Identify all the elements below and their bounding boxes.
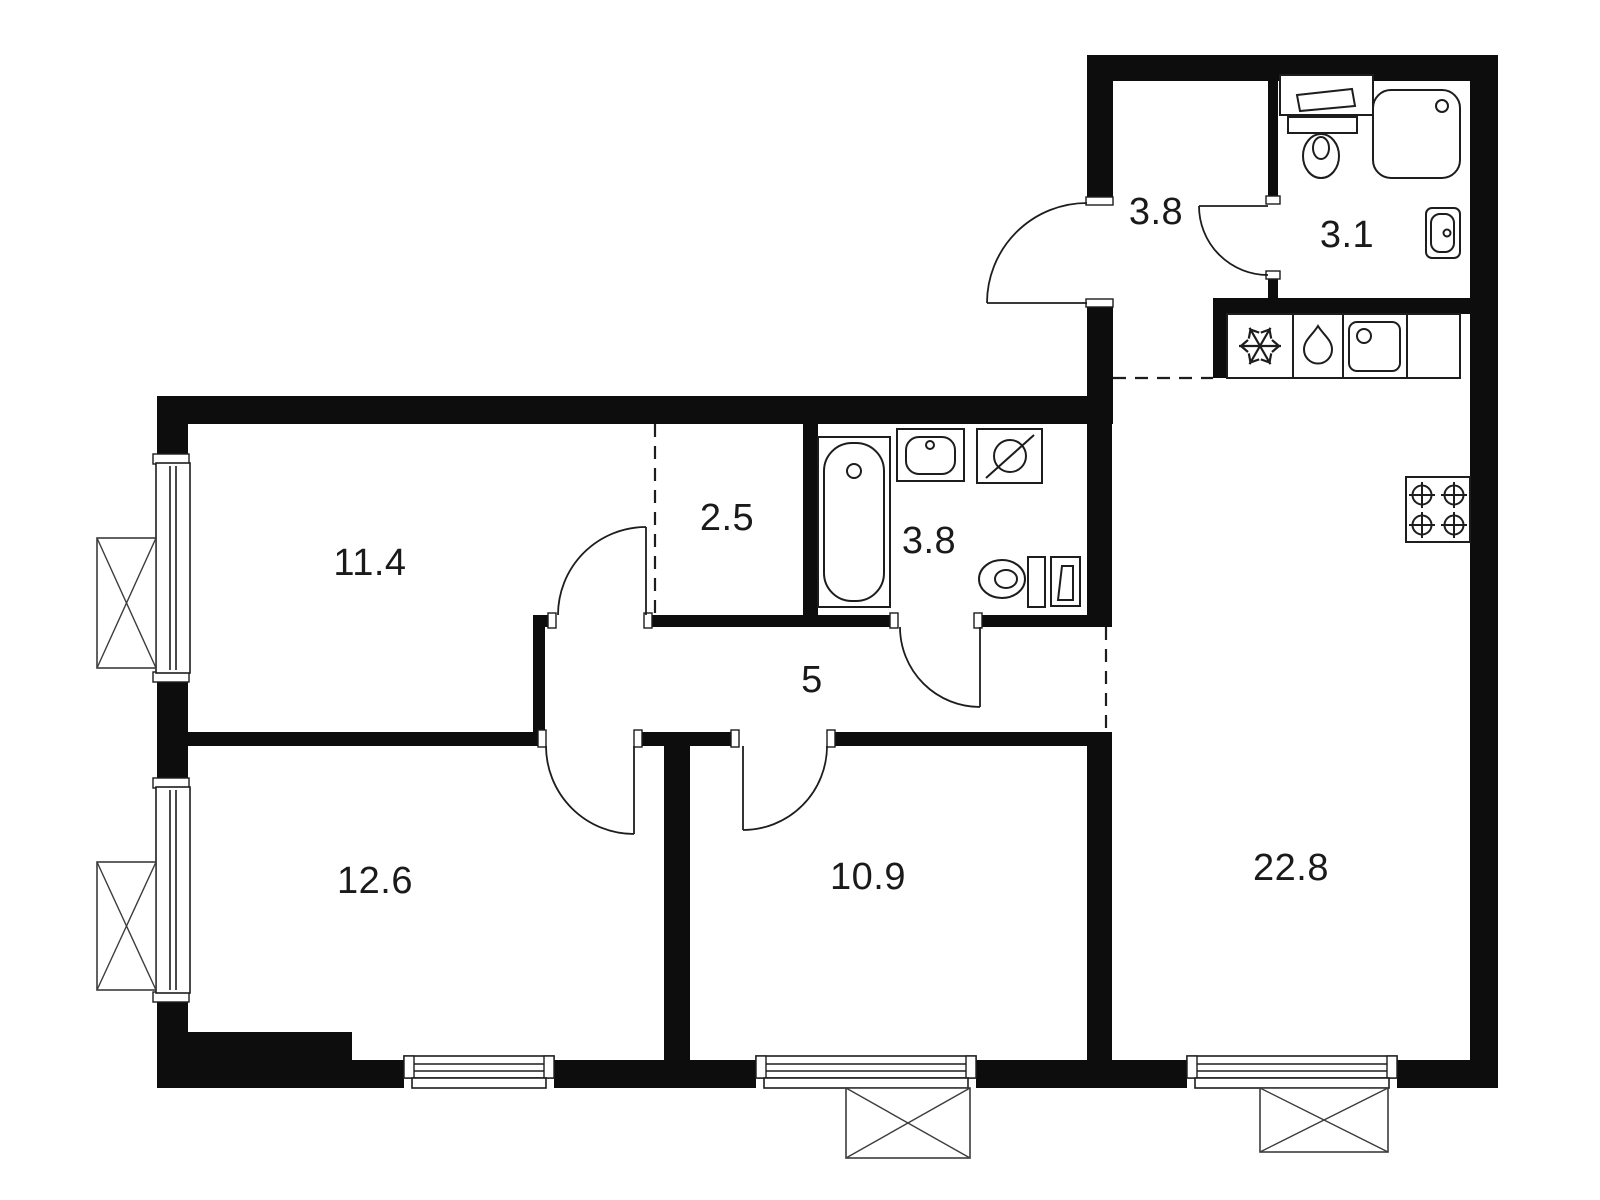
- washbasin-icon: [1426, 208, 1460, 258]
- wall-bottom-b: [554, 1060, 756, 1088]
- room-label-bathroom-main: 3.8: [902, 520, 956, 562]
- entrance-door-arc: [987, 203, 1087, 303]
- wall-left-seg2: [157, 673, 188, 787]
- wall-right-outer: [1470, 55, 1498, 1088]
- room-label-living-kitchen: 22.8: [1253, 847, 1329, 889]
- bedroom-bottom-left-door-jamb: [538, 730, 546, 747]
- wall-top-main: [157, 396, 1113, 424]
- wall-bath-top-divider-lower: [1268, 279, 1278, 298]
- entrance-door-jamb: [1086, 299, 1113, 307]
- wall-wardrobe-bath-divider: [803, 424, 818, 615]
- balcony-icon: [97, 862, 156, 990]
- entrance-door-jamb: [1086, 197, 1113, 205]
- room-label-bedroom-bottom-left: 12.6: [337, 860, 413, 902]
- wall-living-divider: [1087, 746, 1112, 1088]
- kitchen-fixtures: [1227, 314, 1470, 542]
- bathroom-top-door-jamb: [1266, 196, 1280, 204]
- balcony-icon: [97, 538, 156, 668]
- bedroom-bottom-mid-door-jamb: [827, 730, 835, 747]
- wall-row732-a: [157, 732, 538, 746]
- window-icon: [404, 1056, 554, 1088]
- floor-plan: 11.4 2.5 3.8 5 3.8 3.1 12.6 10.9 22.8: [0, 0, 1600, 1200]
- bedroom-bottom-mid-door-arc: [743, 746, 827, 830]
- wall-row732-b: [642, 732, 739, 746]
- bathtub-icon: [818, 437, 890, 607]
- toilet-icon: [979, 557, 1045, 607]
- bedroom-top-door-jamb: [644, 613, 652, 628]
- washbasin-icon: [897, 429, 964, 481]
- wall-bedrooms-divider: [664, 746, 690, 1060]
- balcony-icon: [846, 1088, 970, 1158]
- balcony-icon: [1260, 1088, 1388, 1152]
- bedroom-top-door-arc: [558, 527, 646, 615]
- window-icon: [153, 778, 190, 1002]
- bathroom-top-door-arc: [1199, 206, 1268, 275]
- wall-bottom-c: [976, 1060, 1187, 1088]
- bathroom-main-fixtures: [818, 429, 1080, 607]
- floor-plan-page: 11.4 2.5 3.8 5 3.8 3.1 12.6 10.9 22.8: [0, 0, 1600, 1200]
- bathroom-top-door-jamb: [1266, 271, 1280, 279]
- wall-bottom-step: [188, 1032, 352, 1088]
- window-icon: [756, 1056, 976, 1088]
- boiler-cabinet-icon: [1051, 557, 1080, 606]
- stove-burners-icon: [1406, 477, 1470, 542]
- bedroom-bottom-left-door-jamb: [634, 730, 642, 747]
- wall-row615-b: [652, 615, 892, 627]
- room-label-hallway: 3.8: [1129, 191, 1183, 233]
- wall-bath-top-divider-upper: [1268, 81, 1278, 197]
- wall-row732-c: [835, 732, 1112, 746]
- bathroom-main-door-arc: [900, 627, 980, 707]
- room-label-bedroom-bottom-mid: 10.9: [830, 856, 906, 898]
- washing-machine-icon: [977, 429, 1042, 483]
- bedroom-bottom-left-door-arc: [546, 746, 634, 834]
- bedroom-top-door-jamb: [548, 613, 556, 628]
- wall-left-seg1: [157, 396, 188, 463]
- bedroom-bottom-mid-door-jamb: [731, 730, 739, 747]
- wall-kitchen-top: [1213, 298, 1470, 314]
- wall-bottom-d: [1397, 1060, 1498, 1088]
- wall-bath-main-right: [1087, 424, 1112, 627]
- room-label-bedroom-top: 11.4: [333, 542, 406, 584]
- wall-corridor-left: [533, 615, 545, 746]
- bathroom-main-door-jamb: [890, 613, 898, 628]
- wall-row615-c: [980, 615, 1112, 627]
- bathroom-main-door-jamb: [974, 613, 982, 628]
- room-label-bathroom-top: 3.1: [1320, 214, 1374, 256]
- wall-kitchen-stub: [1213, 314, 1227, 378]
- shower-icon: [1373, 90, 1460, 178]
- room-label-corridor: 5: [801, 659, 823, 701]
- toilet-icon: [1288, 117, 1357, 178]
- washbasin-icon: [1280, 75, 1373, 115]
- window-icon: [153, 454, 190, 682]
- room-label-wardrobe: 2.5: [700, 497, 754, 539]
- window-icon: [1187, 1056, 1397, 1088]
